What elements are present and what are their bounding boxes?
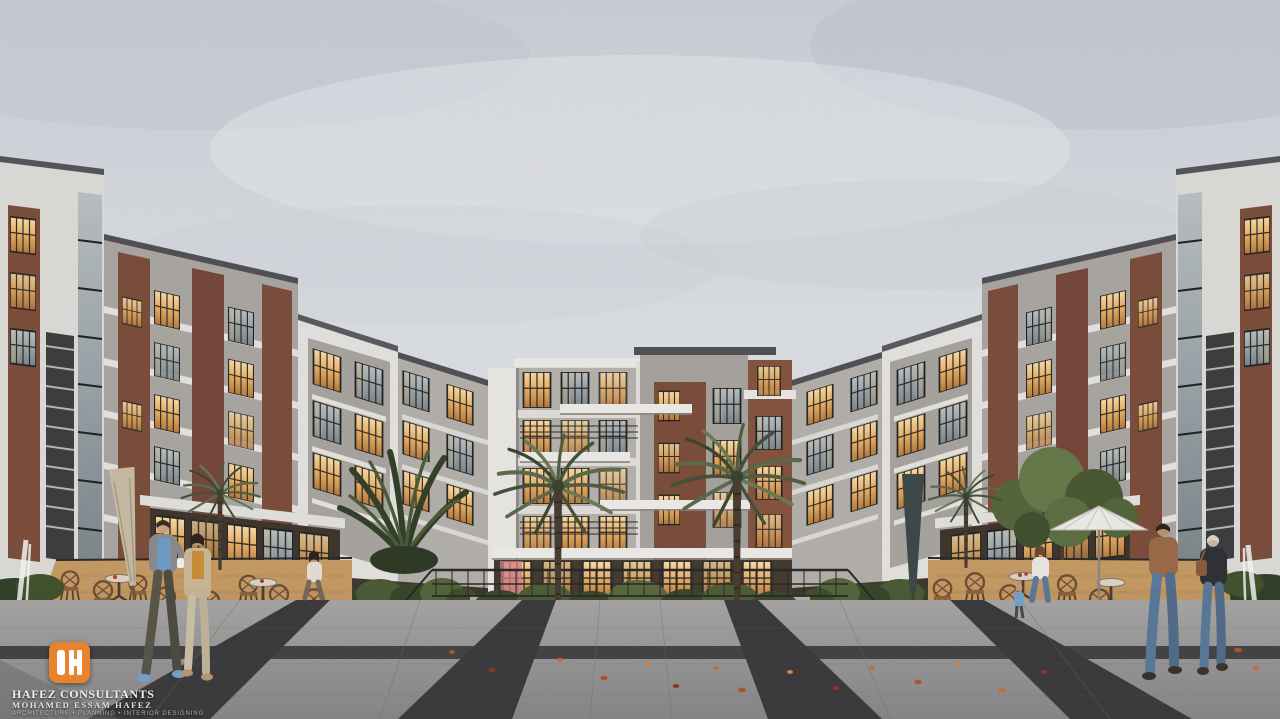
plaza-texture	[0, 600, 1280, 719]
architectural-rendering: HAFEZ CONSULTANTS MOHAMED ESSAM HAFEZ AR…	[0, 0, 1280, 719]
scene-canvas	[0, 0, 1280, 719]
